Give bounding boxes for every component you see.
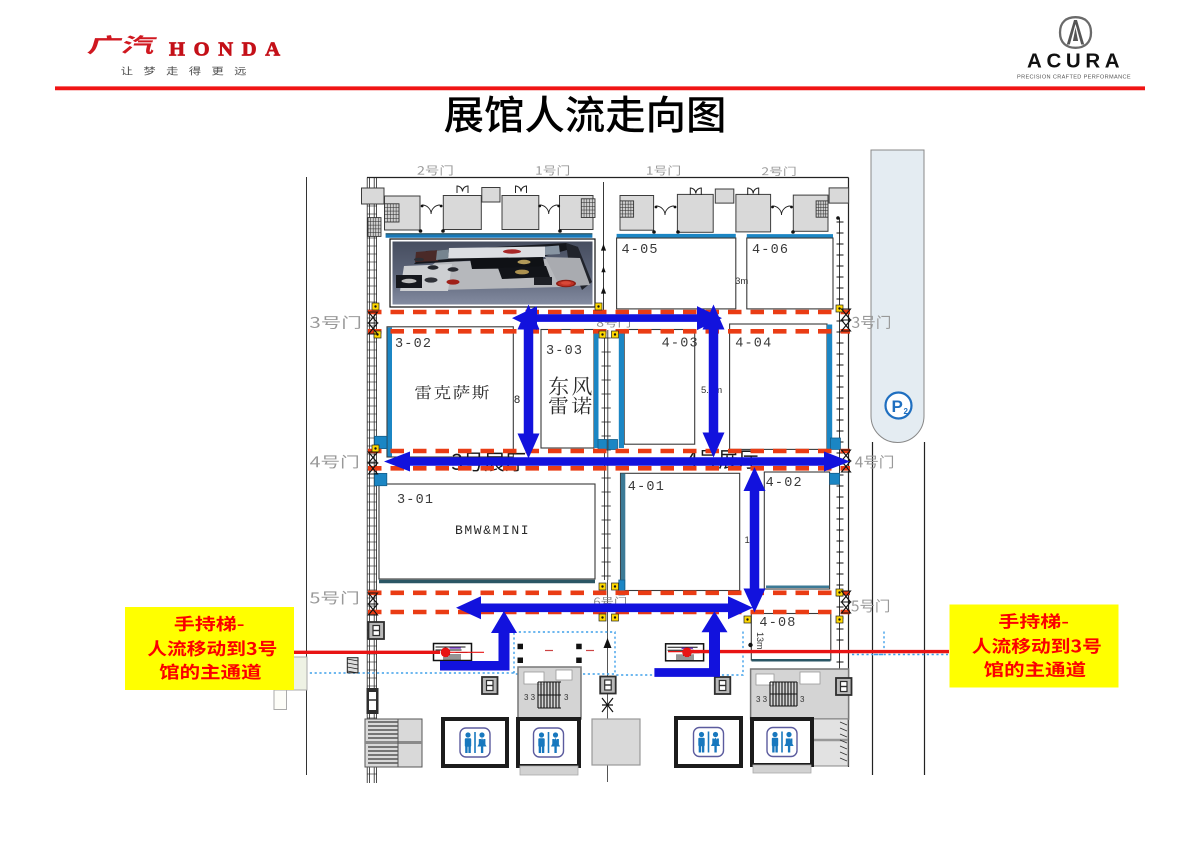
svg-text:4-01: 4-01 (628, 480, 665, 495)
svg-text:4-06: 4-06 (752, 243, 789, 258)
svg-text:BMW&MINI: BMW&MINI (455, 523, 530, 538)
svg-text:4-08: 4-08 (759, 616, 796, 631)
svg-text:P: P (892, 397, 903, 416)
svg-text:HONDA: HONDA (169, 39, 289, 61)
svg-text:4-04: 4-04 (735, 337, 772, 352)
svg-text:3m: 3m (735, 276, 748, 287)
svg-text:13m: 13m (755, 632, 765, 650)
svg-text:4-05: 4-05 (622, 243, 659, 258)
svg-text:3-02: 3-02 (395, 337, 432, 352)
svg-text:PRECISION CRAFTED PERFORMANCE: PRECISION CRAFTED PERFORMANCE (1017, 75, 1131, 81)
svg-text:4-03: 4-03 (662, 337, 699, 352)
svg-text:3-03: 3-03 (546, 344, 583, 359)
svg-text:3: 3 (800, 695, 805, 704)
svg-text:3: 3 (564, 693, 569, 702)
svg-text:8: 8 (514, 394, 520, 406)
svg-text:4-02: 4-02 (766, 476, 803, 491)
svg-text:3-01: 3-01 (397, 493, 434, 508)
svg-text:3 3: 3 3 (524, 693, 536, 702)
svg-text:ACURA: ACURA (1027, 50, 1122, 73)
svg-text:2: 2 (904, 407, 909, 416)
svg-text:3 3: 3 3 (756, 695, 768, 704)
